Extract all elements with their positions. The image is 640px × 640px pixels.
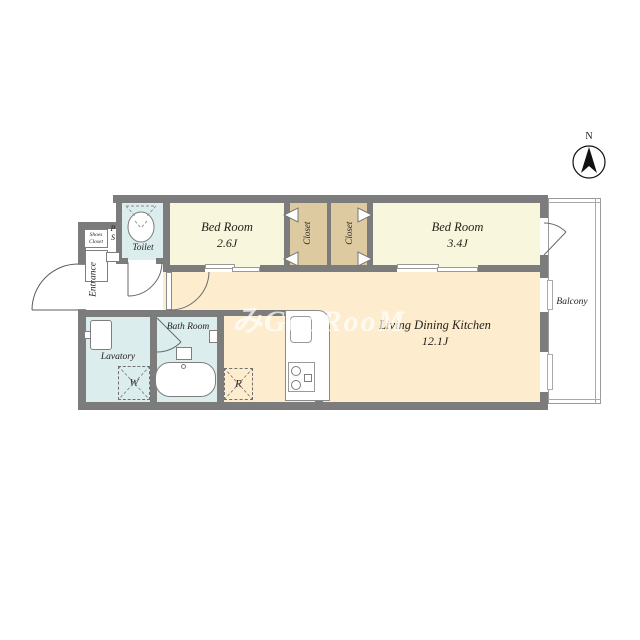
ldk-door-leaf [166, 272, 172, 310]
lavatory-name: Lavatory [88, 352, 148, 363]
wall-top [113, 195, 548, 203]
bath-stool [176, 347, 192, 360]
wall-bottom [78, 402, 548, 410]
bathtub-drain [181, 364, 186, 369]
ldk-size: 12.1J [330, 335, 540, 349]
bedroom1-floor [170, 203, 284, 267]
toilet-name: Toilet [118, 243, 168, 254]
compass-north-label: N [580, 131, 598, 143]
refrigerator-space: R [224, 368, 253, 400]
balcony-name: Balcony [544, 297, 600, 308]
floor-plan: Shoes Closet P S W R [0, 0, 640, 640]
washer-label: W [129, 377, 138, 389]
wall-closet-bed2 [367, 203, 373, 267]
wall-hall-right [163, 195, 170, 272]
sliding-door-bed2-a [397, 264, 439, 269]
shoes-closet-label: Shoes Closet [89, 232, 103, 245]
ldk-window-2-glass [547, 354, 553, 390]
washer-space: W [118, 366, 150, 400]
stove-burner-2 [291, 380, 301, 390]
bedroom2-name: Bed Room [380, 220, 535, 234]
wall-right-seg4 [540, 392, 548, 410]
refrigerator-label: R [235, 378, 242, 390]
stove-knob [304, 374, 312, 382]
entrance-name: Entrance [89, 247, 100, 311]
lavatory-sink [90, 320, 112, 350]
bedroom2-floor [373, 203, 540, 267]
bedroom1-size: 2.6J [170, 237, 284, 251]
wall-closet-mid [327, 203, 331, 267]
lavatory-sink-faucet [84, 331, 91, 339]
sliding-door-bed1-b [232, 267, 260, 272]
sliding-door-bed2-b [437, 267, 478, 272]
wall-beds-bottom-c [478, 265, 548, 272]
pipe-space-label: P S [104, 224, 122, 242]
wall-right-seg1 [540, 195, 548, 218]
compass-icon [573, 146, 605, 178]
wall-beds-bottom-b [260, 265, 397, 272]
kitchen-sink [290, 316, 312, 343]
stove-burner-1 [291, 366, 301, 376]
wall-bed1-closet [284, 203, 290, 267]
balcony-top-line [548, 202, 601, 203]
ldk-name: Living Dining Kitchen [330, 318, 540, 332]
wall-bath-right [217, 310, 224, 402]
wall-kitchen-back [223, 310, 292, 316]
sliding-door-bed1-a [205, 264, 235, 269]
entrance-door-swing [32, 264, 78, 310]
closet1-name: Closet [302, 203, 312, 263]
bedroom1-name: Bed Room [170, 220, 284, 234]
wall-beds-bottom-a [163, 265, 205, 272]
balcony-bottom-line [548, 399, 601, 400]
bath-name: Bath Room [165, 322, 211, 333]
wall-right-seg3 [540, 312, 548, 352]
toilet-door-swing [128, 262, 162, 296]
bedroom2-size: 3.4J [380, 237, 535, 251]
closet2-name: Closet [344, 203, 354, 263]
balcony-door-opening [540, 218, 548, 255]
